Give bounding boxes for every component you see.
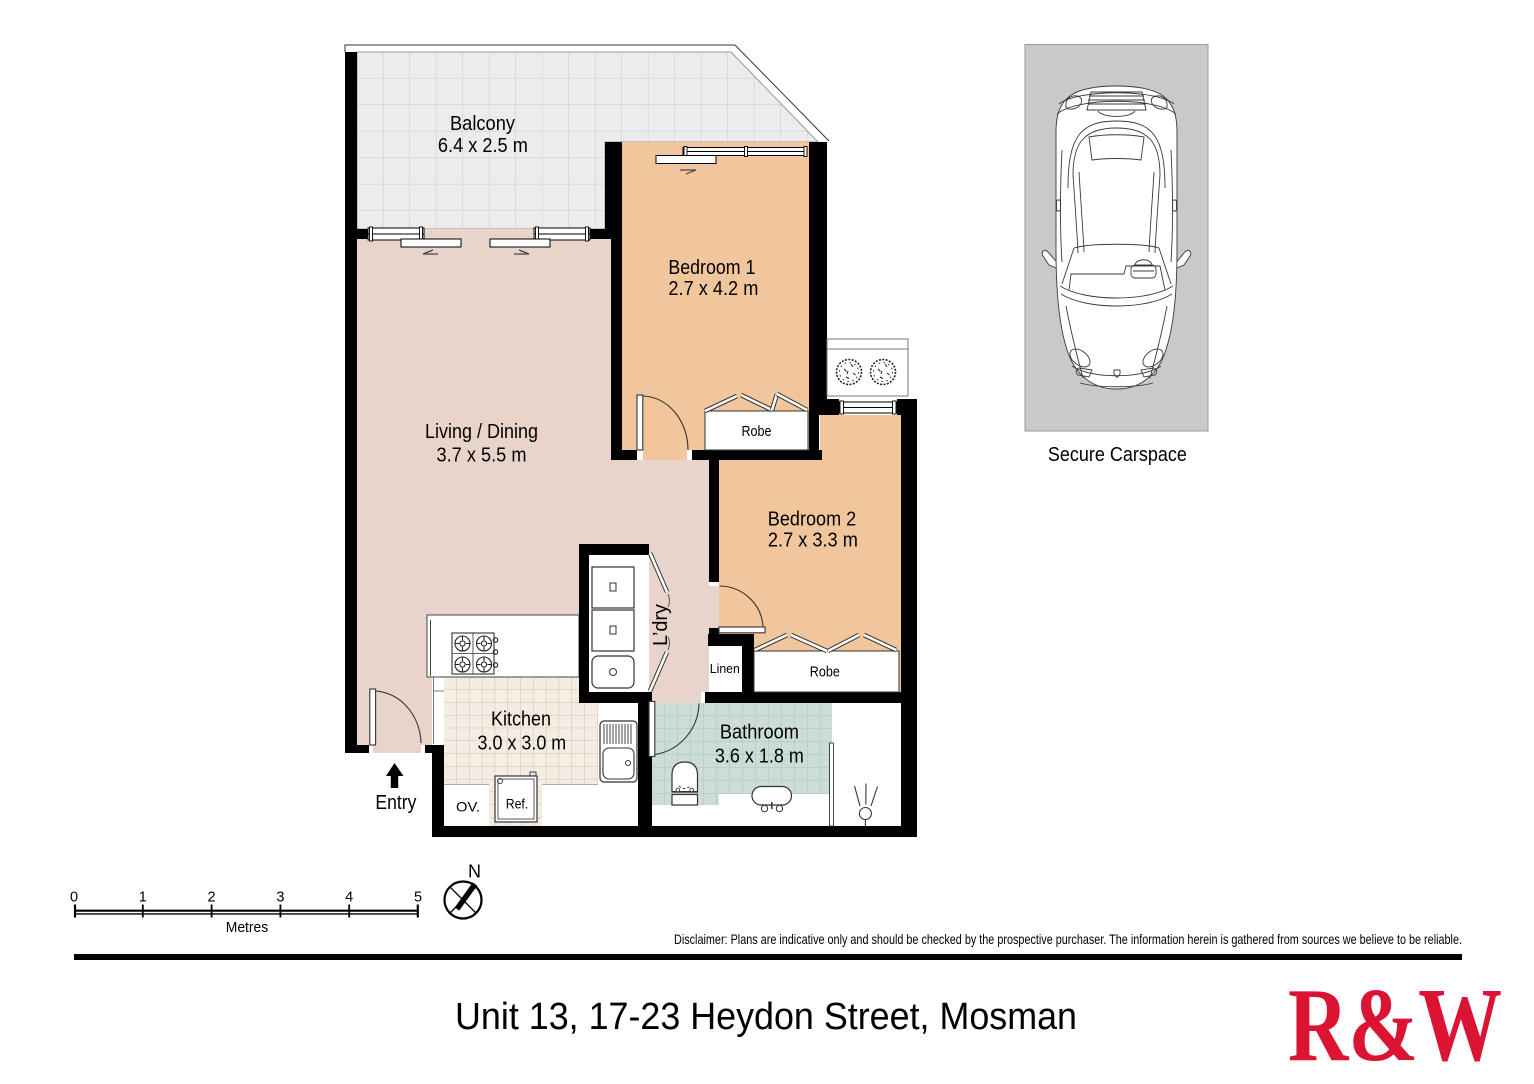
svg-text:L’dry: L’dry xyxy=(650,604,672,646)
svg-text:6.4 x 2.5 m: 6.4 x 2.5 m xyxy=(438,135,528,157)
svg-text:N: N xyxy=(468,862,481,882)
svg-text:3.7 x 5.5 m: 3.7 x 5.5 m xyxy=(437,445,527,467)
svg-text:Secure Carspace: Secure Carspace xyxy=(1048,444,1187,466)
svg-text:R&W: R&W xyxy=(1288,966,1502,1083)
svg-text:2.7 x 3.3 m: 2.7 x 3.3 m xyxy=(768,530,858,552)
svg-text:3: 3 xyxy=(276,890,284,906)
svg-text:Metres: Metres xyxy=(226,920,269,936)
svg-text:Linen: Linen xyxy=(710,661,740,676)
svg-text:Robe: Robe xyxy=(742,424,772,440)
svg-text:Kitchen: Kitchen xyxy=(491,709,551,731)
svg-text:1: 1 xyxy=(139,890,147,906)
svg-text:Robe: Robe xyxy=(810,665,840,681)
svg-text:Living / Dining: Living / Dining xyxy=(425,421,538,443)
svg-text:Unit 13, 17-23 Heydon Street,: Unit 13, 17-23 Heydon Street, Mosman xyxy=(455,996,1077,1038)
svg-text:OV.: OV. xyxy=(456,799,480,815)
svg-text:5: 5 xyxy=(414,890,422,906)
svg-text:2: 2 xyxy=(208,890,216,906)
svg-text:Bedroom 2: Bedroom 2 xyxy=(768,509,856,531)
svg-text:3.6 x 1.8 m: 3.6 x 1.8 m xyxy=(715,746,804,768)
svg-text:4: 4 xyxy=(345,890,353,906)
svg-text:Bedroom 1: Bedroom 1 xyxy=(668,257,755,279)
svg-text:2.7 x 4.2 m: 2.7 x 4.2 m xyxy=(668,278,758,300)
svg-text:Bathroom: Bathroom xyxy=(720,722,799,744)
svg-text:Ref.: Ref. xyxy=(506,796,529,812)
svg-text:Balcony: Balcony xyxy=(450,113,515,135)
svg-text:Entry: Entry xyxy=(375,792,416,814)
svg-text:3.0 x 3.0 m: 3.0 x 3.0 m xyxy=(478,733,567,755)
svg-text:0: 0 xyxy=(70,890,78,906)
svg-text:Disclaimer: Plans are indicati: Disclaimer: Plans are indicative only an… xyxy=(674,932,1462,947)
